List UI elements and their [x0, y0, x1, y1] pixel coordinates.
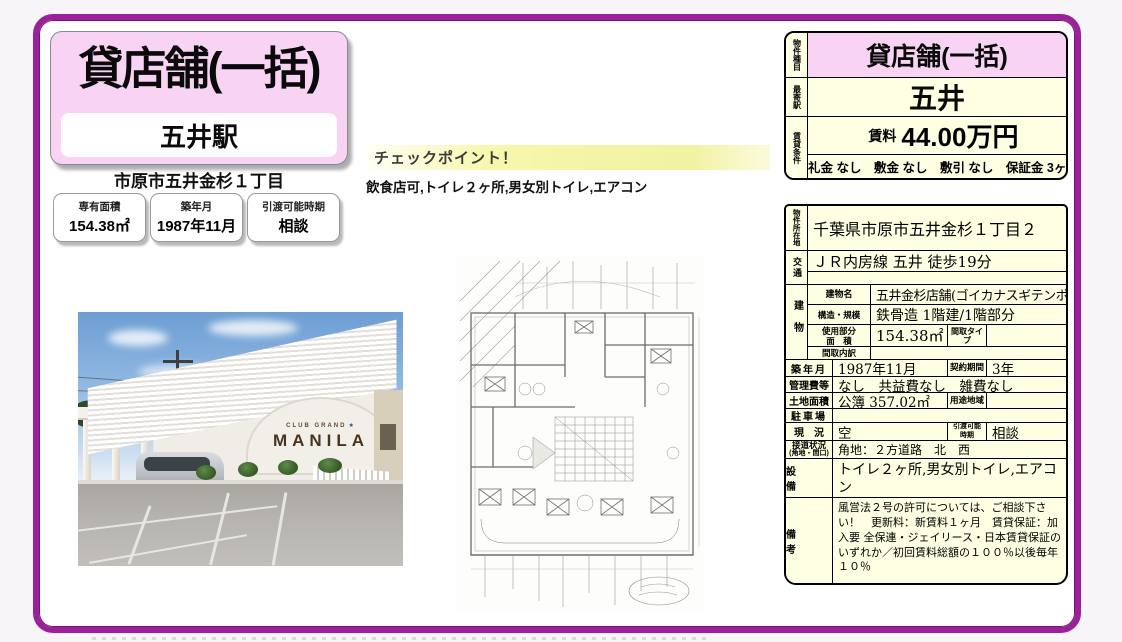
value-building-name: 五井金杉店舗(ゴイカナスギテンポ): [871, 285, 1068, 304]
value-nearest-station: 五井: [808, 78, 1066, 116]
label-nearest-station: 最寄駅: [786, 78, 808, 116]
label-madori-breakdown: 間取内訳: [808, 347, 871, 359]
label-land-area: 土地面積: [786, 393, 833, 408]
chip-value: 相談: [278, 215, 308, 236]
row-location: 物件所在地 千葉県市原市五井金杉１丁目２: [786, 206, 1066, 250]
label-location: 物件所在地: [786, 206, 808, 250]
label-rent-conditions: 賃貸条件: [786, 117, 808, 178]
sign-manila: MANILA: [273, 431, 369, 451]
value-madori-breakdown: [871, 347, 1068, 359]
clipped-footer-text: [92, 637, 712, 640]
chip-floor-area: 専有面積 154.38㎡: [53, 193, 146, 242]
value-equipment: トイレ２ヶ所,男女別トイレ,エアコン: [833, 459, 1066, 497]
value-land-area: 公簿 357.02㎡: [833, 393, 947, 408]
detail-table: 物件所在地 千葉県市原市五井金杉１丁目２ 交通 ＪＲ内房線 五井 徒歩19分 建…: [784, 204, 1068, 585]
label-property-type: 物件種目: [786, 33, 808, 77]
row-rent-conditions: 賃貸条件 賃料 44.00万円 礼金 なし 敷金 なし 敷引 なし 保証金 3ヶ…: [786, 116, 1066, 178]
label-management-fees: 管理費等: [786, 377, 833, 392]
row-land-area: 土地面積 公簿 357.02㎡ 用途地域: [786, 392, 1066, 408]
row-property-type: 物件種目 貸店舗(一括): [786, 33, 1066, 77]
bush: [318, 458, 342, 473]
chip-value: 1987年11月: [157, 215, 236, 236]
value-floor-area: 154.38㎡: [871, 325, 947, 346]
label-handover: 引渡可能 時期: [947, 423, 987, 440]
parking-line: [209, 493, 230, 566]
label-madori-type: 間取タイプ: [947, 325, 987, 346]
label-current-status: 現 況: [786, 423, 833, 440]
address-line: 市原市五井金杉１丁目: [50, 167, 348, 192]
sign-club-grand: CLUB GRAND★: [286, 422, 356, 429]
label-zoning: 用途地域: [947, 393, 987, 408]
row-nearest-station: 最寄駅 五井: [786, 77, 1066, 116]
value-madori-type: [987, 325, 1068, 346]
value-parking: [833, 409, 1066, 422]
page-title: 貸店舗(一括): [51, 36, 347, 101]
bush: [238, 462, 258, 477]
parking-line: [78, 505, 277, 533]
value-access-2: [808, 271, 1066, 284]
value-management-fees: なし 共益費なし 雑費なし: [833, 377, 1066, 392]
label-floor-area: 使用部分 面 積: [808, 325, 871, 346]
parking-lot: [78, 484, 403, 566]
row-road-access: 接道状況 (角地・間口) 角地：２方道路 北 西: [786, 440, 1066, 458]
row-notes: 備 考 風営法２号の許可については、ご相談下さい！ 更新料：新賃料１ヶ月 賃貸保…: [786, 497, 1066, 583]
label-road-access: 接道状況 (角地・間口): [786, 441, 833, 458]
sign-star-icon: ★: [348, 422, 355, 429]
row-access: 交通 ＪＲ内房線 五井 徒歩19分: [786, 250, 1066, 284]
floorplan-image: [455, 257, 705, 613]
label-notes: 備 考: [786, 498, 833, 583]
property-type-banner: 貸店舗(一括) 五井駅: [50, 31, 348, 165]
parking-line: [272, 492, 288, 565]
chip-value: 154.38㎡: [69, 215, 130, 236]
label-structure: 構造・規模: [808, 305, 871, 324]
station-banner: 五井駅: [61, 113, 337, 157]
cloud: [108, 330, 168, 346]
value-notes: 風営法２号の許可については、ご相談下さい！ 更新料：新賃料１ヶ月 賃貸保証：加入…: [833, 498, 1066, 583]
cloud: [208, 320, 298, 336]
row-floor-area: 使用部分 面 積 154.38㎡ 間取タイプ: [808, 324, 1068, 346]
chip-built-date: 築年月 1987年11月: [150, 193, 243, 242]
chip-handover: 引渡可能時期 相談: [247, 193, 340, 242]
rent-row: 賃料 44.00万円: [808, 117, 1068, 154]
row-parking: 駐車場: [786, 408, 1066, 422]
label-parking: 駐車場: [786, 409, 833, 422]
checkpoint-text: 飲食店可,トイレ２ヶ所,男女別トイレ,エアコン: [366, 176, 776, 196]
label-contract-term: 契約期間: [947, 360, 987, 376]
row-madori-breakdown: 間取内訳: [808, 346, 1068, 359]
checkpoint-heading: チェックポイント！: [366, 145, 770, 170]
value-zoning: [987, 393, 1066, 408]
rent-conditions: 礼金 なし 敷金 なし 敷引 なし 保証金 3ヶ月: [808, 154, 1068, 178]
property-flyer: 貸店舗(一括) 五井駅 市原市五井金杉１丁目 専有面積 154.38㎡ 築年月 …: [0, 0, 1122, 642]
rent-value: 44.00万円: [901, 117, 1018, 154]
label-equipment: 設 備: [786, 459, 833, 497]
label-access: 交通: [786, 251, 808, 284]
value-location: 千葉県市原市五井金杉１丁目２: [808, 206, 1066, 250]
parking-line: [89, 534, 247, 564]
row-management-fees: 管理費等 なし 共益費なし 雑費なし: [786, 376, 1066, 392]
value-contract-term: 3年: [987, 360, 1066, 376]
value-structure: 鉄骨造 1階建/1階部分: [871, 305, 1068, 324]
chip-label: 専有面積: [79, 199, 121, 214]
chip-label: 築年月: [181, 199, 213, 214]
bush: [196, 465, 216, 480]
value-road-access: 角地：２方道路 北 西: [833, 441, 1066, 458]
bush: [278, 460, 298, 475]
value-current-status: 空: [833, 423, 947, 440]
value-built-date: 1987年11月: [833, 360, 947, 376]
row-equipment: 設 備 トイレ２ヶ所,男女別トイレ,エアコン: [786, 458, 1066, 497]
row-built-date: 築年月 1987年11月 契約期間 3年: [786, 359, 1066, 376]
row-building: 建物 建物名 五井金杉店舗(ゴイカナスギテンポ) 構造・規模 鉄骨造 1階建/1…: [786, 284, 1066, 359]
value-handover: 相談: [987, 423, 1066, 440]
label-building: 建物: [786, 285, 808, 359]
value-property-type: 貸店舗(一括): [808, 33, 1066, 77]
rent-label: 賃料: [868, 126, 896, 146]
row-structure: 構造・規模 鉄骨造 1階建/1階部分: [808, 304, 1068, 324]
row-current-status: 現 況 空 引渡可能 時期 相談: [786, 422, 1066, 440]
exterior-photo: CLUB GRAND★ MANILA: [78, 312, 403, 566]
neighbor-window: [380, 424, 396, 450]
summary-table: 物件種目 貸店舗(一括) 最寄駅 五井 賃貸条件 賃料 44.00万円 礼金 な…: [784, 31, 1068, 180]
chip-label: 引渡可能時期: [262, 199, 325, 214]
label-building-name: 建物名: [808, 285, 871, 304]
row-building-name: 建物名 五井金杉店舗(ゴイカナスギテンポ): [808, 285, 1068, 304]
label-built-date: 築年月: [786, 360, 833, 376]
value-access: ＪＲ内房線 五井 徒歩19分: [808, 251, 1066, 271]
